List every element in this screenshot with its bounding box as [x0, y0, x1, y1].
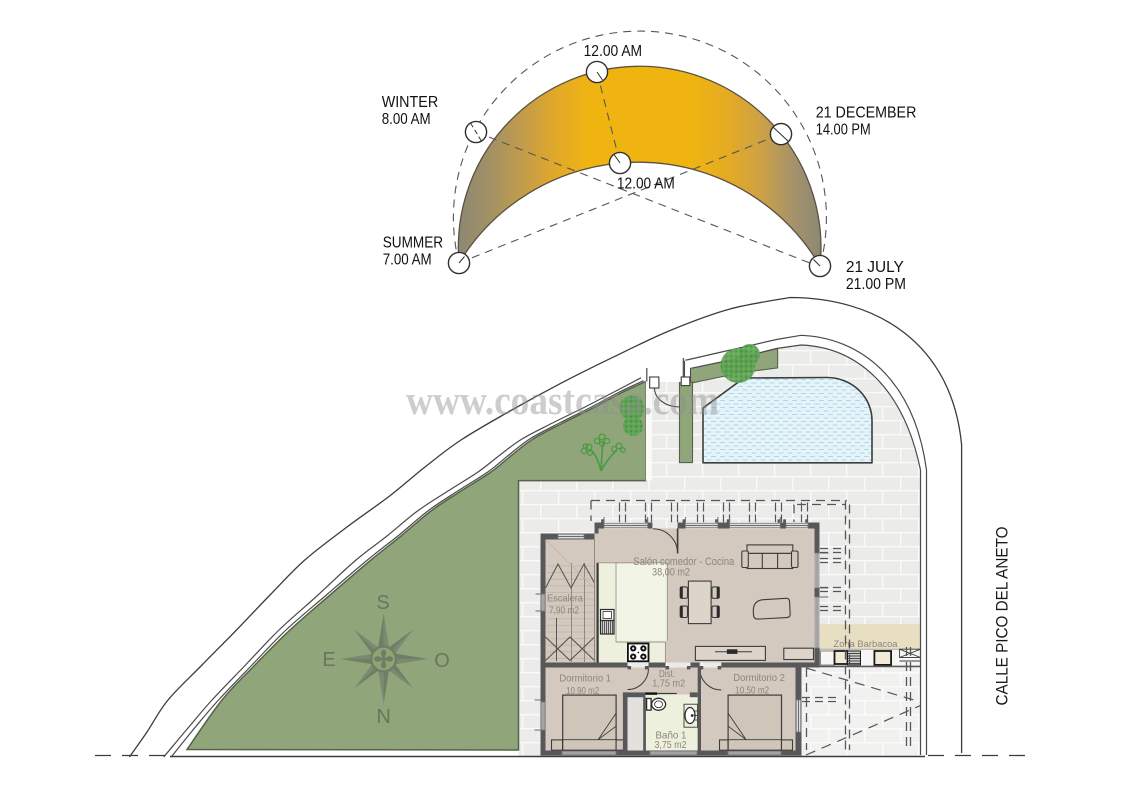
svg-text:14.00 PM: 14.00 PM — [816, 122, 871, 139]
svg-text:Dormitorio 2: Dormitorio 2 — [733, 672, 785, 684]
svg-text:12.00 AM: 12.00 AM — [617, 176, 675, 193]
svg-text:WINTER: WINTER — [382, 94, 439, 111]
svg-text:O: O — [434, 650, 450, 672]
svg-text:21 JULY: 21 JULY — [846, 259, 904, 276]
svg-text:7,90 m2: 7,90 m2 — [549, 606, 579, 617]
svg-text:CALLE PICO DEL ANETO: CALLE PICO DEL ANETO — [994, 526, 1012, 705]
svg-text:1,75 m2: 1,75 m2 — [652, 678, 685, 690]
svg-text:3,75 m2: 3,75 m2 — [655, 739, 687, 751]
svg-text:21.00 PM: 21.00 PM — [846, 276, 906, 293]
svg-text:Escalera: Escalera — [547, 594, 584, 605]
svg-text:8.00 AM: 8.00 AM — [382, 111, 431, 128]
svg-text:10,90 m2: 10,90 m2 — [566, 685, 599, 697]
svg-text:www.coastcasa.com: www.coastcasa.com — [406, 377, 719, 423]
svg-text:10,50 m2: 10,50 m2 — [735, 685, 769, 697]
svg-text:S: S — [376, 592, 389, 614]
svg-text:N: N — [376, 706, 390, 728]
svg-text:SUMMER: SUMMER — [383, 235, 443, 252]
svg-text:Dormitorio 1: Dormitorio 1 — [559, 673, 611, 685]
svg-text:21 DECEMBER: 21 DECEMBER — [816, 105, 917, 122]
svg-text:Zona Barbacoa: Zona Barbacoa — [834, 639, 898, 649]
svg-text:12.00 AM: 12.00 AM — [584, 43, 643, 60]
svg-text:7.00 AM: 7.00 AM — [383, 252, 432, 269]
svg-text:E: E — [322, 649, 335, 671]
svg-text:38,00 m2: 38,00 m2 — [652, 567, 690, 579]
